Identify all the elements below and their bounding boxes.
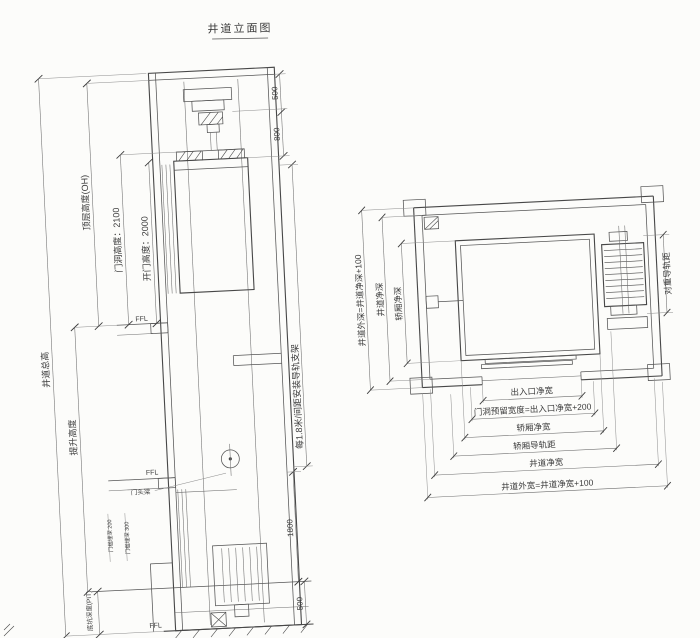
sheet-edge-hatch (4, 624, 14, 636)
corner-column (641, 186, 664, 203)
elevation-view: 井道总高 提升高度 顶层高度(OH) 门洞高度：2100 开门高度：2000 底… (25, 63, 321, 638)
landing-sill-line (482, 376, 581, 381)
label-door-header: 门头梁 (131, 487, 151, 497)
plan-shaft-walls (401, 186, 672, 395)
plan-depth-dimensions (358, 202, 463, 393)
corner-column (648, 364, 671, 381)
label-sill-note-1: 门槛埋深 200 (105, 519, 115, 552)
buffer (234, 604, 249, 617)
hoist-rope (216, 132, 217, 150)
label-car-clear-width: 轿厢净宽 (516, 421, 551, 433)
drawing-title: 井道立面图 (207, 20, 272, 35)
car-outline (455, 234, 600, 361)
label-rail-bracket-note: 每1.8米/间距安装导轨支架 (289, 344, 305, 449)
title-block: 井道立面图 (207, 20, 272, 39)
label-shaft-outer-depth: 井道外深=井道净深+100 (353, 254, 368, 347)
label-overhead: 顶层高度(OH) (78, 175, 92, 231)
plan-counterweight (601, 225, 648, 330)
label-entrance-clear-width: 出入口净宽 (510, 385, 553, 397)
label-ffl-middle: FFL (146, 469, 159, 477)
label-pit-depth: 底坑深度(PIT) (84, 591, 95, 632)
label-dim-800: 800 (272, 127, 282, 141)
lower-door-sill (158, 478, 175, 489)
shaft-outline (148, 67, 301, 630)
pit-floor-line (164, 624, 314, 631)
cwt-bracket-top (609, 231, 627, 241)
plan-car (423, 234, 600, 371)
label-ffl-upper: FFL (135, 316, 148, 324)
cwt-rail-base (607, 317, 647, 330)
label-shaft-clear-width: 井道净宽 (529, 457, 564, 469)
label-cwt-rail-distance: 对重导轨距 (661, 252, 673, 295)
door-header-leader (154, 473, 227, 491)
car-rail-bracket-left (426, 296, 439, 309)
label-shaft-outer-width: 井道外宽=井道净宽+100 (501, 477, 594, 492)
label-door-reserved-width: 门洞预留宽度=出入口净宽+200 (474, 401, 592, 417)
hoist-rope (210, 132, 211, 150)
plan-width-dimensions (417, 329, 672, 501)
guide-rail-line (238, 79, 265, 622)
ground-hatch (175, 624, 308, 638)
label-shaft-clear-depth: 井道净深 (374, 282, 386, 317)
label-sill-note-2: 门槛埋深 300 (122, 521, 132, 554)
elevation-shaft-structure (66, 67, 313, 638)
label-car-clear-depth: 轿厢净深 (392, 286, 404, 321)
elevator-car (161, 149, 254, 294)
traction-machine (183, 87, 234, 151)
car-door-panel (166, 165, 172, 294)
label-car-rail-distance: 轿厢导轨距 (513, 439, 556, 451)
upper-door-sill (151, 323, 168, 334)
label-travel-height: 提升高度 (66, 419, 79, 456)
label-open-door-height: 开门高度：2000 (138, 216, 152, 281)
guide-rail-line (184, 82, 211, 625)
door-header-beam (176, 490, 237, 493)
title-underline (212, 38, 268, 39)
label-door-opening-height: 门洞高度：2100 (110, 207, 124, 272)
shaft-drawing-svg: 井道立面图 (0, 0, 700, 638)
label-dim-500-top: 500 (270, 86, 280, 100)
bottom-floor-line (92, 581, 312, 592)
label-dim-1800: 1800 (285, 518, 295, 537)
label-dim-500-bottom: 500 (295, 596, 305, 610)
plan-view: 出入口净宽 门洞预留宽度=出入口净宽+200 轿厢净宽 轿厢导轨距 井道净宽 井… (350, 185, 682, 504)
label-ffl-lower: FFL (149, 622, 162, 630)
label-shaft-total-height: 井道总高 (39, 352, 52, 389)
drawing-sheet: 井道立面图 (0, 0, 700, 638)
car-body (174, 158, 254, 293)
